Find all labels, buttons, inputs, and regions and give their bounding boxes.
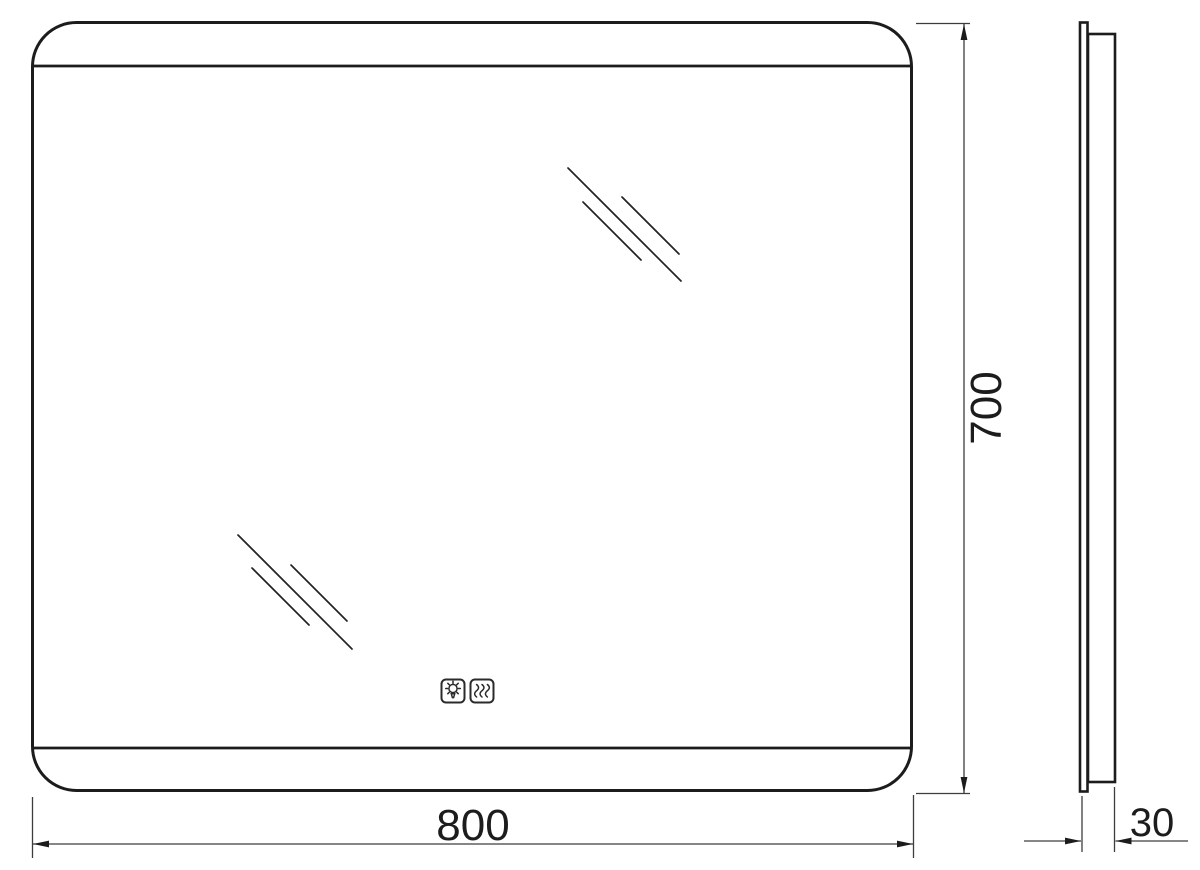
- arrowhead-right: [897, 841, 913, 848]
- heat-icon-waves: [475, 685, 490, 698]
- depth-dimension: 30: [1024, 787, 1188, 852]
- reflection-marks-lower-left: [238, 535, 352, 649]
- arrowhead-down: [961, 777, 968, 793]
- height-dimension-label: 700: [962, 371, 1011, 444]
- light-icon-base: [451, 694, 454, 698]
- front-view: [33, 23, 912, 791]
- drawing-canvas: 800 700 30: [0, 0, 1200, 870]
- side-view-backing-box: [1088, 34, 1115, 782]
- arrowhead-inward-right: [1065, 838, 1081, 845]
- reflection-marks-upper-right: [568, 168, 681, 281]
- reflection-line: [583, 202, 641, 260]
- arrowhead-up: [961, 24, 968, 40]
- mirror-outline: [33, 23, 912, 791]
- side-view-glass-panel: [1080, 23, 1088, 792]
- reflection-line: [568, 168, 681, 281]
- light-icon-rays: [446, 681, 461, 694]
- reflection-line: [238, 535, 352, 649]
- width-dimension: 800: [33, 795, 914, 858]
- heating-waves-icon: [471, 680, 494, 703]
- side-view: [1080, 23, 1115, 792]
- light-icon-bulb: [449, 684, 457, 692]
- height-dimension: 700: [916, 24, 1011, 794]
- reflection-line: [622, 197, 679, 254]
- width-dimension-label: 800: [436, 801, 509, 850]
- arrowhead-left: [33, 841, 49, 848]
- touch-controls: [442, 680, 494, 703]
- reflection-line: [291, 565, 347, 621]
- depth-dimension-label: 30: [1130, 801, 1175, 845]
- mirror-technical-drawing: 800 700 30: [0, 0, 1200, 870]
- light-bulb-icon: [442, 680, 465, 703]
